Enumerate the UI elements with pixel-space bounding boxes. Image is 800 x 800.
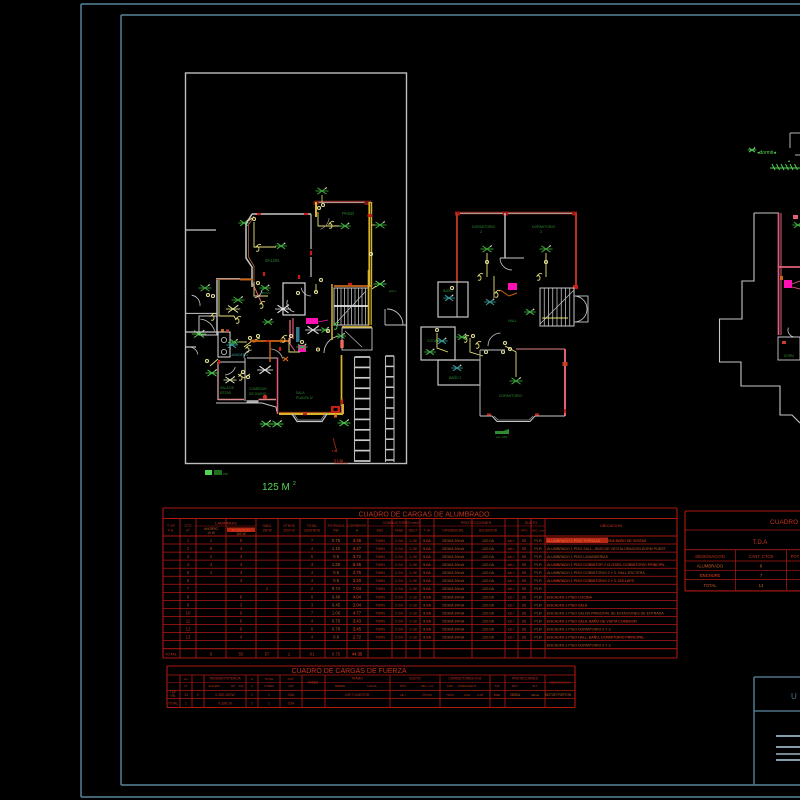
svg-text:2.08: 2.08 [409,619,416,623]
svg-text:10: 10 [186,610,191,615]
svg-text:PLR: PLR [534,563,542,567]
svg-text:PLR: PLR [534,595,542,599]
svg-text:tub.r: tub.r [508,619,516,623]
svg-text:25/30A 30mA: 25/30A 30mA [442,539,465,543]
svg-text:2.0A: 2.0A [395,579,403,583]
svg-text:5.0A: 5.0A [423,547,431,551]
svg-text:BAÑO: BAÑO [443,288,453,293]
svg-text:20: 20 [522,627,526,631]
svg-text:BAÑO 2: BAÑO 2 [449,375,462,380]
svg-text:2.0A: 2.0A [395,611,403,615]
svg-text:ENCHUFE 2 PISO SALA, BAÑO DE V: ENCHUFE 2 PISO SALA, BAÑO DE VISITA COME… [547,618,637,623]
svg-text:55: 55 [239,652,244,657]
svg-text:25/30A 30mA: 25/30A 30mA [442,571,465,575]
svg-text:120.0A: 120.0A [482,627,495,631]
svg-text:DESIGNACION: DESIGNACION [549,681,570,685]
svg-text:1: 1 [172,693,174,697]
svg-text:ESTAR: ESTAR [220,391,232,395]
svg-text:5.0A: 5.0A [423,563,431,567]
svg-text:5.0A: 5.0A [423,611,431,615]
svg-text:120.0A: 120.0A [482,547,495,551]
svg-text:220-380: 220-380 [208,684,219,688]
svg-text:5.0A: 5.0A [423,539,431,543]
svg-text:5.0A: 5.0A [423,579,431,583]
svg-text:BAÑO: BAÑO [262,290,271,295]
svg-text:120.0A: 120.0A [482,636,495,640]
svg-text:25/30A 30mA: 25/30A 30mA [442,603,465,607]
svg-text:25/30A 30mA: 25/30A 30mA [442,627,465,631]
svg-text:DORM: DORM [784,354,794,358]
svg-text:25/30A 30mA: 25/30A 30mA [442,563,465,567]
svg-text:KW: KW [333,529,339,533]
svg-text:DORMITORIO: DORMITORIO [532,225,555,229]
svg-text:V A.: V A. [168,529,174,533]
svg-text:2.08: 2.08 [409,587,416,591]
svg-text:0.8: 0.8 [333,635,339,640]
svg-text:TWIN: TWIN [375,627,385,631]
svg-text:2.08: 2.08 [409,595,416,599]
svg-text:25/30A 30mA: 25/30A 30mA [442,579,465,583]
svg-text:ENCHUFE 2 PISO HALL, BAÑO, DOR: ENCHUFE 2 PISO HALL, BAÑO, DORMITORIO PR… [547,635,644,640]
svg-text:25/30A 30mA: 25/30A 30mA [442,587,465,591]
svg-text:T JA: T JA [424,529,431,533]
svg-text:4.04: 4.04 [353,594,362,599]
svg-text:2.0A: 2.0A [395,619,403,623]
svg-text:tub.r: tub.r [508,555,516,559]
svg-text:2.72: 2.72 [353,635,362,640]
svg-text:▴: ▴ [788,158,790,163]
svg-text:POT.: POT. [288,677,295,681]
svg-text:25/30A 30mA: 25/30A 30mA [442,636,465,640]
svg-text:CUADRO DE CARGAS DE FUERZA: CUADRO DE CARGAS DE FUERZA [291,668,406,675]
svg-text:1.28: 1.28 [332,562,341,567]
svg-text:120.0A: 120.0A [482,587,495,591]
svg-text:DEBRE: DEBRE [335,684,345,688]
svg-text:DESIGNACION: DESIGNACION [695,554,724,559]
svg-text:25/30A 30mA: 25/30A 30mA [442,595,465,599]
svg-text:tub.r: tub.r [508,563,516,567]
svg-text:DORMITORIO: DORMITORIO [499,394,522,398]
svg-text:HP: HP [231,684,235,688]
svg-text:20: 20 [522,603,526,607]
svg-text:TRAMO: TRAMO [351,677,363,681]
svg-text:TWIN: TWIN [375,539,385,543]
svg-text:TIPO: TIPO [520,529,528,533]
svg-text:CUADRO: CUADRO [770,519,798,526]
svg-text:0.33/0.18: 0.33/0.18 [218,702,232,706]
svg-text:2000 W: 2000 W [283,529,295,533]
svg-text:SALON: SALON [265,258,279,263]
svg-text:2.0A: 2.0A [395,571,403,575]
svg-text:1.50: 1.50 [337,459,343,463]
svg-text:T. DF: T. DF [167,524,175,528]
svg-text:20 mm: 20 mm [422,693,432,697]
svg-text:CUADRO DE CARGAS DE ALUMBR: CUADRO DE CARGAS DE ALUMBRADO [358,512,490,519]
svg-text:1.10: 1.10 [332,546,341,551]
svg-text:PLR: PLR [534,636,542,640]
svg-text:1: 1 [185,702,187,706]
svg-text:13: 13 [759,583,764,588]
svg-text:tub.r: tub.r [508,595,516,599]
svg-text:GNDL: GNDL [262,524,271,528]
svg-text:5.0A: 5.0A [423,555,431,559]
svg-text:ENCHUFE 1 PISO SALON PRINCIPAL: ENCHUFE 1 PISO SALON PRINCIPAL DE ESTACI… [547,611,664,615]
svg-text:PLR: PLR [534,547,542,551]
svg-text:CTO: CTO [185,524,192,528]
svg-text:1: 1 [268,693,270,697]
svg-text:tub.r: tub.r [508,611,516,615]
svg-text:20: 20 [522,563,526,567]
svg-text:ENCHUFE 2 PISO DORMITORIO 2 Y: ENCHUFE 2 PISO DORMITORIO 2 Y 3 [547,627,611,631]
svg-text:AISL: AISL [447,684,454,688]
svg-text:57: 57 [265,652,270,657]
svg-text:tub.r: tub.r [508,579,516,583]
svg-text:TWIN: TWIN [375,547,385,551]
svg-text:LAMPARAS: LAMPARAS [215,521,237,526]
svg-text:0.45: 0.45 [332,602,341,607]
svg-text:OTROS: OTROS [283,524,296,528]
svg-text:tub.r: tub.r [508,571,516,575]
svg-text:0.78: 0.78 [332,626,341,631]
svg-text:TOTAL: TOTAL [165,653,177,657]
svg-text:2.0A: 2.0A [395,595,403,599]
svg-text:0.9: 0.9 [333,554,339,559]
svg-text:61: 61 [310,652,315,657]
svg-text:UBICACION: UBICACION [600,523,622,528]
svg-text:2.0A: 2.0A [464,693,470,697]
svg-text:20: 20 [522,555,526,559]
svg-text:150 W: 150 W [262,529,272,533]
svg-text:2.08: 2.08 [409,563,416,567]
svg-text:ALUMBRADO: ALUMBRADO [697,564,724,569]
svg-text:4.77: 4.77 [353,610,362,615]
svg-text:2: 2 [293,481,296,487]
svg-text:0.6: 0.6 [333,570,339,575]
svg-text:25/30A 30mA: 25/30A 30mA [442,555,465,559]
svg-text:POT: POT [791,554,800,559]
svg-text:100 W: 100 W [236,532,245,536]
svg-text:3.45: 3.45 [353,538,362,543]
svg-text:CENTROS: CENTROS [304,529,321,533]
svg-text:20: 20 [522,547,526,551]
svg-text:ALUMBRADO 1 PISO DORMITOR 2 CL: ALUMBRADO 1 PISO DORMITOR 2 CLOSES, DORM… [547,563,665,567]
svg-text:CANT. CTOS: CANT. CTOS [749,554,774,559]
svg-text:PLANTA IV: PLANTA IV [296,396,314,400]
svg-text:U: U [791,692,797,701]
svg-text:TOTAL: TOTAL [168,702,178,706]
svg-text:0.75: 0.75 [332,618,341,623]
svg-text:3.43: 3.43 [353,618,362,623]
svg-text:DSY.: DSY. [512,684,519,688]
svg-text:DISJUNTOR: DISJUNTOR [479,529,498,533]
svg-text:5.45: 5.45 [353,562,362,567]
svg-text:1: 1 [268,702,270,706]
svg-text:NEUT: NEUT [409,529,418,533]
svg-text:125 M: 125 M [262,482,290,493]
svg-text:CTRES: CTRES [264,684,274,688]
svg-text:tub.r: tub.r [508,587,516,591]
svg-text:tub.r: tub.r [508,603,516,607]
svg-text:KW: KW [289,684,294,688]
svg-text:◂dormit◂: ◂dormit◂ [757,150,776,156]
svg-text:TWIN: TWIN [375,619,385,623]
svg-text:0.75: 0.75 [332,538,341,543]
svg-text:HALL: HALL [389,289,397,293]
svg-text:ALUMBRADO 1 PISO DORMITORIO 2: ALUMBRADO 1 PISO DORMITORIO 2 Y 3, HALL … [547,571,645,575]
svg-text:3.20: 3.20 [353,578,362,583]
svg-text:tub.r: tub.r [508,547,516,551]
svg-text:DIFERENCIAL: DIFERENCIAL [442,529,463,533]
svg-text:In: In [251,677,254,681]
svg-text:TWIN: TWIN [446,693,454,697]
svg-text:TWIN: TWIN [375,571,385,575]
svg-text:10 W: 10 W [207,531,214,535]
svg-text:PLR: PLR [534,587,542,591]
svg-text:TOTAL: TOTAL [264,677,274,681]
svg-text:2.0A: 2.0A [395,627,403,631]
svg-text:25/30A 30mA: 25/30A 30mA [442,611,465,615]
svg-text:INT.: INT. [532,684,538,688]
svg-text:2.0A: 2.0A [395,587,403,591]
svg-text:25/30A 30mA: 25/30A 30mA [442,619,465,623]
svg-text:PLR: PLR [534,539,542,543]
svg-text:COMEDOR: COMEDOR [249,387,267,391]
svg-text:20: 20 [522,539,526,543]
svg-text:ALUMBRADO 1 PISO SALL, JNÚS DE: ALUMBRADO 1 PISO SALL, JNÚS DE VESTALORA… [547,546,667,551]
svg-text:9.74: 9.74 [332,586,341,591]
svg-text:20: 20 [522,587,526,591]
svg-text:FASE: FASE [395,529,403,533]
svg-text:120.0A: 120.0A [482,571,495,575]
svg-text:3.45: 3.45 [353,626,362,631]
svg-text:2.0A: 2.0A [395,603,403,607]
svg-text:FASES:NEUT: FASES:NEUT [458,684,477,688]
svg-text:MOTOR PORTON: MOTOR PORTON [545,693,572,697]
svg-text:2.08: 2.08 [409,555,416,559]
svg-text:2.08: 2.08 [409,579,416,583]
svg-text:14: 14 [184,693,188,697]
svg-text:ENCHUFE 1 PISO SALA: ENCHUFE 1 PISO SALA [547,603,588,607]
svg-text:SEC. mm: SEC. mm [421,684,434,688]
svg-text:2.08: 2.08 [409,539,416,543]
svg-text:0.33/0.18 KW: 0.33/0.18 KW [215,693,234,697]
svg-text:2: 2 [251,693,253,697]
svg-text:2.0A: 2.0A [395,555,403,559]
svg-text:SALA DE: SALA DE [220,386,235,390]
svg-text:7.04: 7.04 [353,586,362,591]
svg-text:DORMITORIO: DORMITORIO [472,225,495,229]
svg-text:0.5F Y A MOTOR: 0.5F Y A MOTOR [345,693,370,697]
svg-text:ENCHUFE 2 PISO DORMITORIO 2 Y: ENCHUFE 2 PISO DORMITORIO 2 Y 3 [547,644,611,648]
svg-text:2.0A: 2.0A [395,563,403,567]
svg-text:tub.r: tub.r [508,627,516,631]
svg-text:120.0A: 120.0A [482,579,495,583]
svg-text:2.75: 2.75 [353,570,362,575]
svg-text:CONDUCTORES mm2: CONDUCTORES mm2 [382,521,419,525]
svg-text:5.0A: 5.0A [423,636,431,640]
svg-text:2.08: 2.08 [409,636,416,640]
svg-text:5.0A: 5.0A [494,693,500,697]
svg-text:DUCTO: DUCTO [525,521,538,525]
svg-text:2.08: 2.08 [409,571,416,575]
svg-text:13: 13 [186,635,191,640]
svg-text:TWIN: TWIN [375,563,385,567]
svg-text:esc: esc [223,472,228,476]
svg-text:TWIN: TWIN [375,579,385,583]
svg-text:120.0A: 120.0A [482,603,495,607]
svg-text:20: 20 [522,571,526,575]
svg-text:0.75: 0.75 [332,652,341,657]
svg-text:120.0A: 120.0A [482,539,495,543]
svg-text:PROTECCIONES: PROTECCIONES [512,677,538,681]
svg-text:CONDUCTORES mm2: CONDUCTORES mm2 [449,677,482,681]
svg-text:0.5A: 0.5A [288,693,295,697]
svg-text:POTENCIA: POTENCIA [328,524,346,528]
svg-text:AISL: AISL [377,529,384,533]
svg-text:5.0A: 5.0A [423,627,431,631]
svg-text:2: 2 [480,230,482,234]
svg-text:ENCHUFE: ENCHUFE [700,573,720,578]
svg-text:cto: cto [184,677,188,681]
svg-text:3.72: 3.72 [353,554,362,559]
svg-text:5.0A: 5.0A [423,595,431,599]
svg-text:2.0A: 2.0A [395,547,403,551]
svg-text:20: 20 [522,611,526,615]
svg-text:120.0A: 120.0A [482,563,495,567]
svg-text:ALUMBRADO 1 PISO LAVANDERIAS: ALUMBRADO 1 PISO LAVANDERIAS [547,555,609,559]
svg-text:5.0A: 5.0A [423,619,431,623]
svg-text:TJP: TJP [494,684,499,688]
svg-text:30mA: 30mA [531,693,539,697]
svg-text:PLR: PLR [534,571,542,575]
svg-text:PLR: PLR [534,579,542,583]
svg-text:PLR: PLR [534,611,542,615]
svg-text:2.08: 2.08 [409,611,416,615]
svg-text:tub.r: tub.r [400,693,406,697]
svg-text:ALUMBRADO 1 PISO TERRAZA,: ALUMBRADO 1 PISO TERRAZA, [547,539,601,543]
svg-text:TOTAL: TOTAL [307,524,317,528]
svg-text:TWIN: TWIN [375,587,385,591]
svg-text:2.0A: 2.0A [395,636,403,640]
svg-text:SEC. mm: SEC. mm [532,529,545,533]
svg-text:1.8: 1.8 [332,449,337,453]
svg-text:T.D.A: T.D.A [753,540,768,546]
svg-text:20: 20 [522,579,526,583]
svg-text:ALUMBRADO 1 PISO DORMITORIO 2: ALUMBRADO 1 PISO DORMITORIO 2 Y 3, DIS.L… [547,579,635,583]
svg-text:PLR: PLR [534,627,542,631]
svg-text:44.35: 44.35 [352,652,363,657]
svg-text:120.0A: 120.0A [482,595,495,599]
svg-text:120.0A: 120.0A [482,611,495,615]
svg-text:TWIN: TWIN [375,603,385,607]
svg-text:20: 20 [522,636,526,640]
svg-text:120.0A: 120.0A [482,619,495,623]
svg-text:PLR: PLR [534,603,542,607]
svg-text:TWIN: TWIN [375,636,385,640]
svg-text:tub.r: tub.r [508,636,516,640]
svg-text:25/30A 30mA: 25/30A 30mA [442,547,465,551]
svg-text:20: 20 [522,595,526,599]
svg-text:2.08: 2.08 [409,547,416,551]
svg-text:TENSION POTENCIA: TENSION POTENCIA [209,677,241,681]
svg-text:25/30A: 25/30A [510,693,521,697]
svg-text:3: 3 [540,230,542,234]
svg-text:2.08: 2.08 [477,693,483,697]
svg-text:HALL: HALL [508,319,517,323]
svg-text:1.06: 1.06 [332,610,341,615]
svg-text:A: A [251,684,253,688]
svg-text:tub.r: tub.r [508,539,516,543]
svg-text:PLR: PLR [534,555,542,559]
svg-text:12: 12 [186,626,191,631]
svg-text:0.5A: 0.5A [288,702,295,706]
svg-text:DUCTO: DUCTO [409,677,421,681]
svg-text:4.27: 4.27 [353,546,362,551]
svg-text:KW: KW [239,684,244,688]
svg-text:2.08: 2.08 [409,627,416,631]
svg-text:PROTECCIONES: PROTECCIONES [461,521,492,525]
svg-text:TWIN: TWIN [375,555,385,559]
svg-text:0.48: 0.48 [332,594,341,599]
svg-text:120.0A: 120.0A [482,555,495,559]
svg-text:5.0A: 5.0A [423,571,431,575]
svg-text:ENCHUFE 1 PISO COCINA: ENCHUFE 1 PISO COCINA [547,595,593,599]
svg-text:11: 11 [186,618,191,623]
svg-text:SALA: SALA [296,391,305,395]
svg-text:TOTAL: TOTAL [703,583,717,588]
svg-text:20: 20 [522,619,526,623]
svg-text:PLR: PLR [534,619,542,623]
svg-text:FASES: FASES [308,681,318,685]
svg-text:esc 1/50: esc 1/50 [496,435,508,439]
svg-text:PASO: PASO [342,211,355,216]
svg-text:DE DIARIO: DE DIARIO [249,392,267,396]
svg-text:5.0A: 5.0A [423,587,431,591]
svg-text:HACIA: HACIA [367,684,376,688]
svg-text:2: 2 [251,702,253,706]
svg-text:TWIN: TWIN [375,611,385,615]
svg-text:TWIN: TWIN [375,595,385,599]
svg-text:2.0A: 2.0A [395,539,403,543]
svg-text:CORRIENTE: CORRIENTE [347,524,367,528]
svg-text:0.8: 0.8 [333,578,339,583]
svg-text:2.04: 2.04 [353,602,362,607]
svg-text:TIPO: TIPO [399,684,407,688]
svg-text:2.08: 2.08 [409,603,416,607]
svg-text:5.0A: 5.0A [423,603,431,607]
